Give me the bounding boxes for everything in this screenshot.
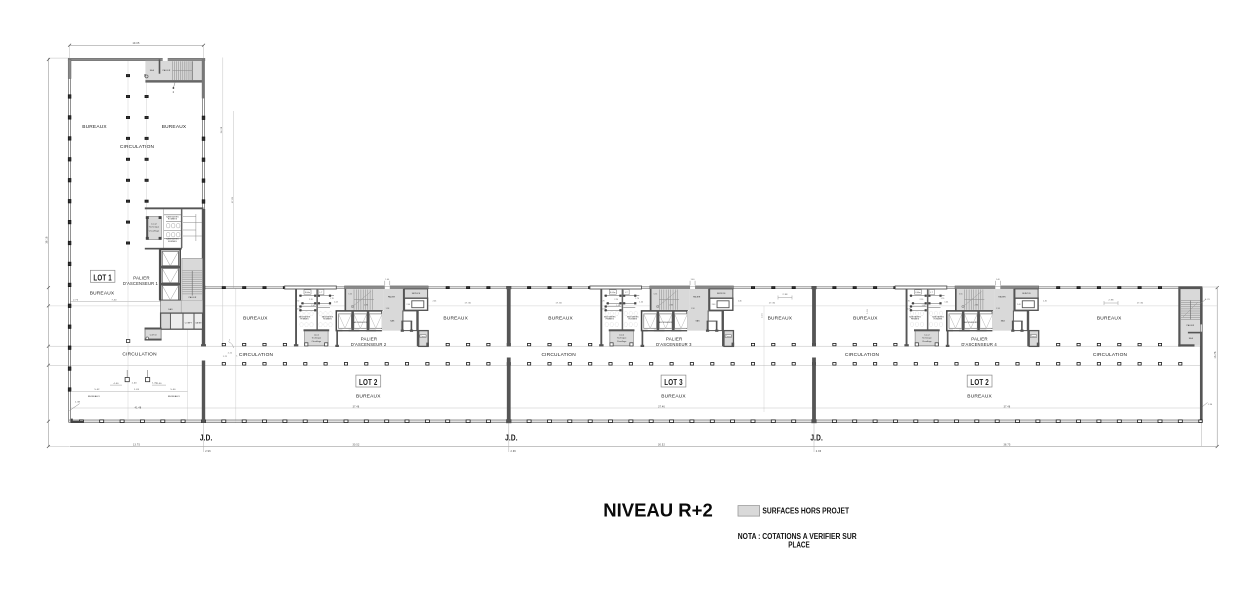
svg-text:Pouss: Pouss [726,336,731,338]
svg-text:PLACE: PLACE [788,540,810,550]
svg-text:BUREAUX: BUREAUX [168,395,180,398]
svg-text:17.30: 17.30 [1137,303,1144,305]
svg-text:8.04m: 8.04m [610,292,616,294]
svg-text:LOT 1: LOT 1 [93,273,112,282]
svg-text:FEMMES: FEMMES [300,319,309,321]
svg-text:LOT 3: LOT 3 [664,378,683,387]
svg-text:1: 1 [236,356,237,358]
svg-text:13.76: 13.76 [1214,351,1217,358]
svg-text:30.52: 30.52 [353,444,360,447]
svg-text:SAS: SAS [168,308,173,311]
svg-text:24.38: 24.38 [221,126,223,133]
svg-text:SAS: SAS [1189,337,1194,340]
svg-text:8.04m: 8.04m [915,292,921,294]
svg-text:Local: Local [619,334,624,336]
svg-text:Technique: Technique [312,337,322,339]
svg-text:38.75: 38.75 [1004,444,1011,447]
svg-text:CIRCULATION: CIRCULATION [845,352,880,358]
svg-text:J.D.: J.D. [505,433,518,443]
svg-text:2.46: 2.46 [406,304,410,306]
svg-text:BUREAUX: BUREAUX [661,394,686,400]
svg-text:SAS: SAS [150,69,155,72]
svg-text:1.44: 1.44 [334,302,338,304]
svg-text:ASCENSEURS: ASCENSEURS [354,321,368,324]
svg-text:1.44: 1.44 [639,302,643,304]
svg-text:4.40: 4.40 [113,383,119,385]
svg-text:PALIER: PALIER [998,296,1006,299]
svg-text:GAINE: GAINE [195,321,202,324]
svg-text:Local: Local [314,334,319,336]
svg-text:L.T: L.T [320,292,323,294]
svg-text:CIRCULATION: CIRCULATION [542,352,577,358]
svg-text:BUREAUX: BUREAUX [243,315,268,321]
svg-text:Pouss: Pouss [421,336,426,338]
svg-text:2.76: 2.76 [73,299,79,301]
svg-text:1.58: 1.58 [996,308,1000,310]
svg-text:SURFACES HORS PROJET: SURFACES HORS PROJET [762,505,849,515]
svg-text:SAS: SAS [696,320,701,323]
svg-text:BUREAUX: BUREAUX [356,394,381,400]
svg-text:17.30: 17.30 [465,303,472,305]
svg-text:PALIER: PALIER [361,336,378,341]
svg-text:2.21: 2.21 [228,353,232,355]
svg-text:Technique: Technique [922,337,932,339]
svg-text:2.46: 2.46 [712,304,716,306]
svg-text:2.46: 2.46 [1043,300,1047,302]
svg-text:BUREAUX: BUREAUX [853,315,878,321]
svg-text:LOT 2: LOT 2 [970,378,989,387]
svg-text:2.86: 2.86 [364,304,368,306]
svg-text:17.65: 17.65 [232,196,234,203]
svg-text:ASCENSEURS: ASCENSEURS [659,321,673,324]
svg-text:1.36: 1.36 [1208,404,1213,406]
svg-text:PALIER: PALIER [666,336,683,341]
svg-text:30.52: 30.52 [658,444,665,447]
svg-text:2.96: 2.96 [510,450,516,453]
svg-text:NIVEAU R+2: NIVEAU R+2 [603,500,713,521]
svg-text:1.21: 1.21 [223,356,227,358]
svg-text:1.40: 1.40 [132,382,138,384]
svg-text:PALIER: PALIER [133,275,150,280]
svg-text:CIRCULATION: CIRCULATION [239,352,274,358]
svg-text:5.55: 5.55 [959,294,963,296]
svg-text:BUREAUX: BUREAUX [88,395,100,398]
svg-text:5.40: 5.40 [170,389,176,391]
svg-text:38.18: 38.18 [45,236,48,243]
svg-text:SERVICE: SERVICE [412,293,421,295]
svg-text:PALIER: PALIER [388,296,396,299]
svg-text:ASCENSEURS: ASCENSEURS [964,321,978,324]
svg-text:PALIER: PALIER [693,296,701,299]
svg-text:BUREAUX: BUREAUX [967,394,992,400]
svg-text:4.40: 4.40 [156,383,162,385]
svg-text:LOT 2: LOT 2 [359,378,378,387]
svg-text:FEMMES: FEMMES [606,319,615,321]
svg-text:Pouss: Pouss [1031,336,1036,338]
svg-text:BUREAUX: BUREAUX [548,315,573,321]
svg-text:SERVICE: SERVICE [1022,293,1031,295]
svg-text:5.55: 5.55 [654,294,658,296]
svg-text:17.30: 17.30 [769,303,776,305]
svg-text:1.70: 1.70 [1205,299,1210,301]
svg-text:D'ASCENSEUR 4: D'ASCENSEUR 4 [961,342,997,347]
svg-text:SAS: SAS [390,320,395,323]
svg-text:7.40: 7.40 [111,299,117,301]
svg-text:1.38: 1.38 [75,402,81,404]
svg-text:FEMMES: FEMMES [168,241,177,243]
svg-text:HOMMES: HOMMES [168,219,178,221]
svg-text:0.90: 0.90 [602,308,606,310]
svg-text:Technique: Technique [617,337,627,339]
svg-text:1.70: 1.70 [296,300,300,302]
svg-text:2.20: 2.20 [920,299,924,301]
svg-text:17.30: 17.30 [555,303,562,305]
svg-text:1.50: 1.50 [311,305,315,307]
svg-text:37.46: 37.46 [1004,407,1011,409]
svg-text:CIRCULATION: CIRCULATION [120,144,155,150]
svg-text:19.05: 19.05 [133,42,140,45]
svg-text:BUREAUX: BUREAUX [90,290,115,296]
svg-text:SERVICE: SERVICE [717,293,726,295]
svg-text:BUREAUX: BUREAUX [768,315,793,321]
svg-text:Technique: Technique [149,227,159,229]
svg-text:1.44: 1.44 [945,302,949,304]
svg-text:BUREAUX: BUREAUX [443,315,468,321]
svg-text:HOMMES: HOMMES [323,319,332,321]
svg-text:Local: Local [151,224,157,226]
svg-text:1.40: 1.40 [996,279,1000,281]
svg-text:1.40: 1.40 [691,279,695,281]
svg-text:2.46: 2.46 [738,300,742,302]
svg-text:Local: Local [924,334,929,336]
svg-text:Coffret: Coffret [150,333,157,336]
svg-text:COMPT: COMPT [185,322,193,324]
svg-text:1.70: 1.70 [906,300,910,302]
svg-text:1.50: 1.50 [616,305,620,307]
svg-text:Chauffage: Chauffage [922,341,932,343]
svg-text:CIRCULATION: CIRCULATION [122,351,157,357]
svg-text:1.70: 1.70 [941,298,945,300]
svg-text:PALIER: PALIER [1187,324,1195,327]
svg-text:2.98: 2.98 [1108,299,1114,301]
svg-text:1.58: 1.58 [386,308,390,310]
svg-text:8.04m: 8.04m [305,292,311,294]
svg-text:2.86: 2.86 [975,304,979,306]
svg-text:Chauffage: Chauffage [617,341,627,343]
svg-text:J.D.: J.D. [200,433,213,443]
svg-text:HOMMES: HOMMES [628,319,637,321]
svg-text:13.75: 13.75 [133,444,140,447]
svg-text:41.48: 41.48 [135,407,142,409]
svg-text:2.21: 2.21 [762,313,764,317]
svg-text:2.86: 2.86 [669,304,673,306]
svg-text:PALIER: PALIER [163,69,171,72]
svg-text:1.63: 1.63 [134,389,140,391]
svg-text:5.55: 5.55 [348,294,352,296]
svg-text:1.58: 1.58 [691,308,695,310]
svg-text:2.46: 2.46 [433,300,437,302]
svg-text:L.T: L.T [930,292,933,294]
svg-text:1.70: 1.70 [601,300,605,302]
svg-text:CIRCULATION: CIRCULATION [1093,352,1128,358]
svg-text:L.T: L.T [625,292,628,294]
svg-text:BUREAUX: BUREAUX [162,124,187,130]
svg-text:J.D.: J.D. [810,433,823,443]
svg-text:D'ASCENSEUR 1: D'ASCENSEUR 1 [123,281,158,286]
svg-text:SAS: SAS [1001,320,1006,323]
svg-text:1.10: 1.10 [867,309,869,313]
svg-text:37.46: 37.46 [658,407,665,409]
svg-text:0.90: 0.90 [297,308,301,310]
svg-text:5.42: 5.42 [94,389,100,391]
svg-text:1.40: 1.40 [385,279,389,281]
svg-text:PALIER: PALIER [971,336,988,341]
svg-text:BUREAUX: BUREAUX [1097,315,1122,321]
svg-text:PALIER: PALIER [189,296,197,299]
svg-text:37.46: 37.46 [353,407,360,409]
svg-text:BUREAUX: BUREAUX [82,124,107,130]
svg-text:2.98: 2.98 [782,294,788,296]
svg-text:Chauffage: Chauffage [312,341,322,343]
svg-text:D'ASCENSEUR 3: D'ASCENSEUR 3 [656,342,692,347]
svg-text:1.70: 1.70 [635,298,639,300]
svg-text:1.50: 1.50 [922,305,926,307]
svg-text:FEMMES: FEMMES [911,319,920,321]
svg-text:2.20: 2.20 [614,299,618,301]
svg-text:2.20: 2.20 [309,299,313,301]
svg-text:1.70: 1.70 [330,298,334,300]
svg-text:0.90: 0.90 [907,308,911,310]
svg-text:2.46: 2.46 [1017,304,1021,306]
svg-text:2.96: 2.96 [205,450,211,453]
svg-text:HOMMES: HOMMES [934,319,943,321]
svg-text:Chauffage: Chauffage [149,231,160,233]
svg-text:D'ASCENSEUR 2: D'ASCENSEUR 2 [351,342,387,347]
svg-text:2.96: 2.96 [816,450,822,453]
